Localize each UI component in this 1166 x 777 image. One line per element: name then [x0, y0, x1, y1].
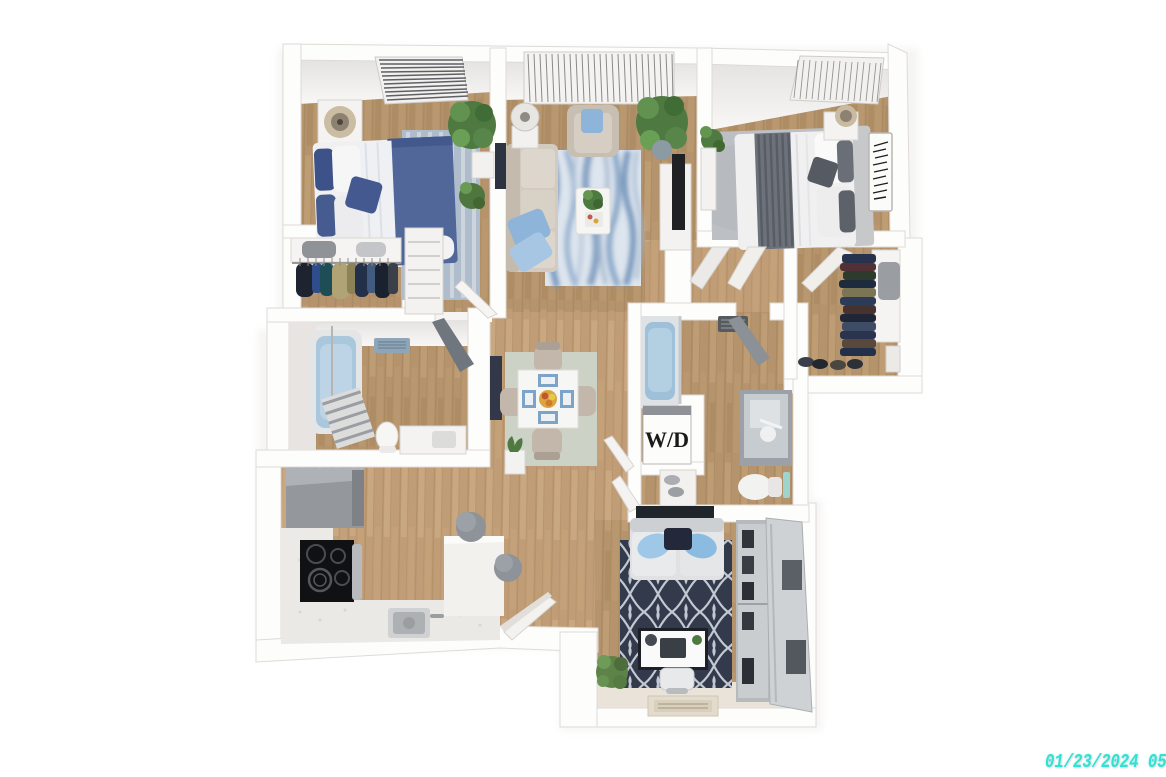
svg-text:W/D: W/D — [645, 427, 689, 452]
